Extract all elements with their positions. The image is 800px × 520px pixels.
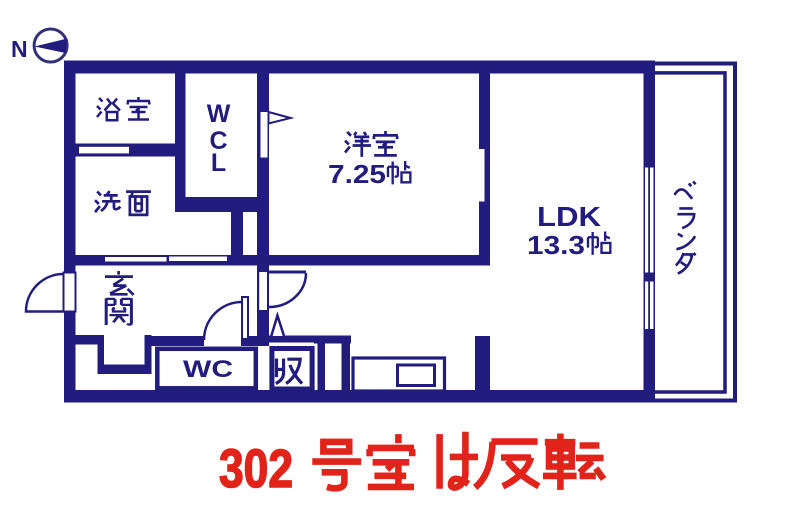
svg-text:7.25: 7.25 xyxy=(328,159,386,189)
svg-text:N: N xyxy=(11,36,28,62)
svg-text:LDK: LDK xyxy=(537,201,601,232)
svg-text:W: W xyxy=(207,100,231,128)
svg-text:L: L xyxy=(211,149,226,177)
svg-text:WC: WC xyxy=(183,356,233,383)
svg-text:302: 302 xyxy=(219,439,293,499)
svg-text:13.3: 13.3 xyxy=(527,230,585,260)
